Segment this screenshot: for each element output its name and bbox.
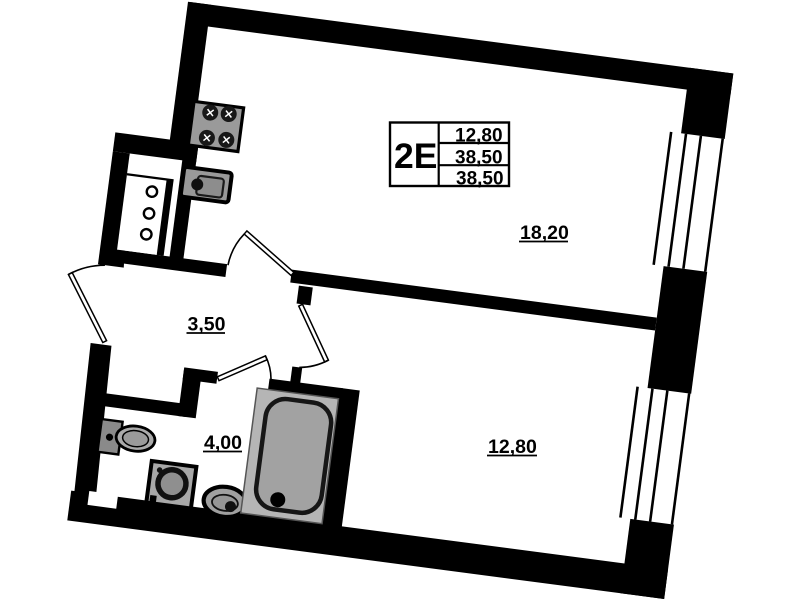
svg-text:12,80: 12,80 <box>455 126 503 147</box>
svg-text:2E: 2E <box>394 136 437 176</box>
svg-text:38,50: 38,50 <box>456 169 504 190</box>
svg-text:38,50: 38,50 <box>455 148 503 169</box>
